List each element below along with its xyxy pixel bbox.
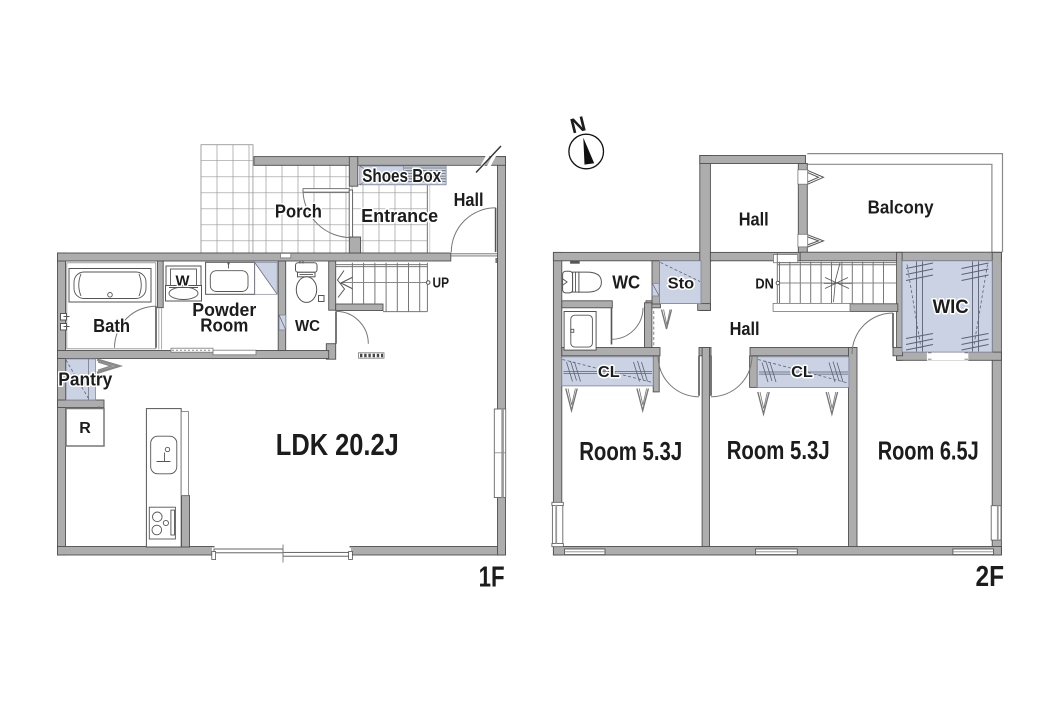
svg-text:Room: Room bbox=[200, 316, 248, 336]
svg-text:W: W bbox=[176, 273, 191, 290]
svg-text:R: R bbox=[79, 420, 91, 437]
svg-text:1F: 1F bbox=[479, 561, 505, 593]
svg-text:Pantry: Pantry bbox=[58, 370, 112, 390]
svg-text:UP: UP bbox=[433, 275, 450, 292]
svg-text:Hall: Hall bbox=[730, 319, 760, 339]
svg-text:WIC: WIC bbox=[933, 297, 969, 318]
svg-text:Hall: Hall bbox=[454, 190, 484, 210]
svg-text:Bath: Bath bbox=[93, 316, 130, 336]
svg-text:DN: DN bbox=[755, 276, 774, 293]
svg-text:CL: CL bbox=[791, 364, 813, 381]
svg-text:Shoes Box: Shoes Box bbox=[362, 166, 441, 186]
svg-text:Balcony: Balcony bbox=[868, 197, 934, 217]
svg-text:Room 5.3J: Room 5.3J bbox=[727, 435, 830, 465]
svg-text:WC: WC bbox=[612, 273, 640, 293]
svg-text:2F: 2F bbox=[976, 561, 1005, 593]
svg-text:Porch: Porch bbox=[275, 201, 322, 221]
svg-text:Room 6.5J: Room 6.5J bbox=[878, 436, 979, 466]
svg-text:Hall: Hall bbox=[739, 209, 769, 229]
svg-text:WC: WC bbox=[295, 318, 320, 335]
svg-text:Room 5.3J: Room 5.3J bbox=[579, 436, 682, 466]
svg-text:LDK 20.2J: LDK 20.2J bbox=[276, 427, 399, 462]
svg-text:CL: CL bbox=[598, 364, 620, 381]
svg-text:Sto: Sto bbox=[668, 276, 695, 293]
svg-text:Entrance: Entrance bbox=[361, 206, 438, 226]
